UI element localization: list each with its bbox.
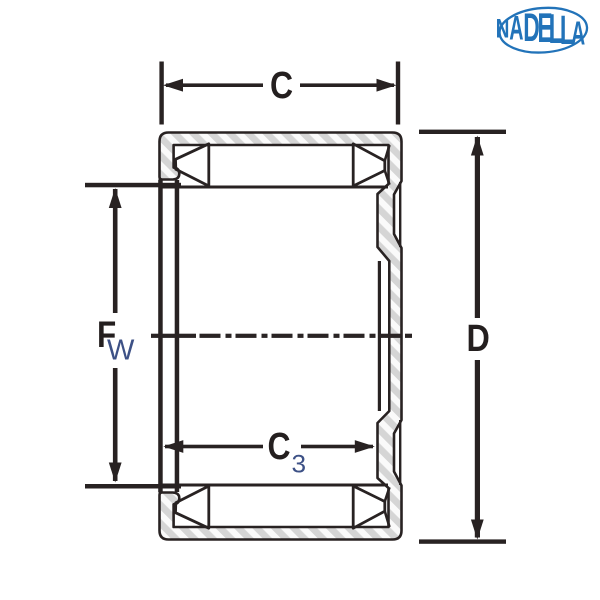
svg-text:3: 3 (292, 451, 307, 478)
svg-text:A: A (509, 9, 523, 47)
svg-text:W: W (107, 335, 135, 367)
svg-text:D: D (467, 318, 490, 360)
svg-text:C: C (270, 64, 293, 106)
svg-text:C: C (268, 425, 291, 467)
svg-text:A: A (571, 14, 585, 52)
svg-text:N: N (496, 13, 510, 43)
